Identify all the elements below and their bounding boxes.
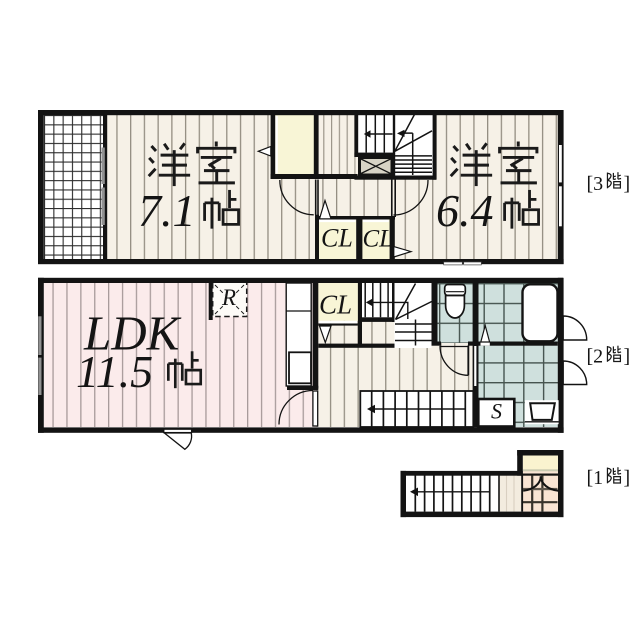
svg-text:6.4: 6.4 <box>436 185 494 236</box>
svg-text:CL: CL <box>319 290 352 320</box>
svg-text:[1: [1 <box>587 467 604 489</box>
svg-text:]: ] <box>624 346 631 368</box>
svg-text:S: S <box>491 399 502 424</box>
svg-text:[3: [3 <box>587 173 604 195</box>
svg-text:]: ] <box>624 467 631 489</box>
svg-text:R: R <box>221 285 236 310</box>
svg-text:CL: CL <box>321 224 353 253</box>
svg-text:CL: CL <box>363 226 394 253</box>
svg-text:11.5: 11.5 <box>76 346 153 397</box>
svg-text:7.1: 7.1 <box>138 185 196 236</box>
svg-text:[2: [2 <box>587 346 604 368</box>
svg-text:]: ] <box>624 173 631 195</box>
